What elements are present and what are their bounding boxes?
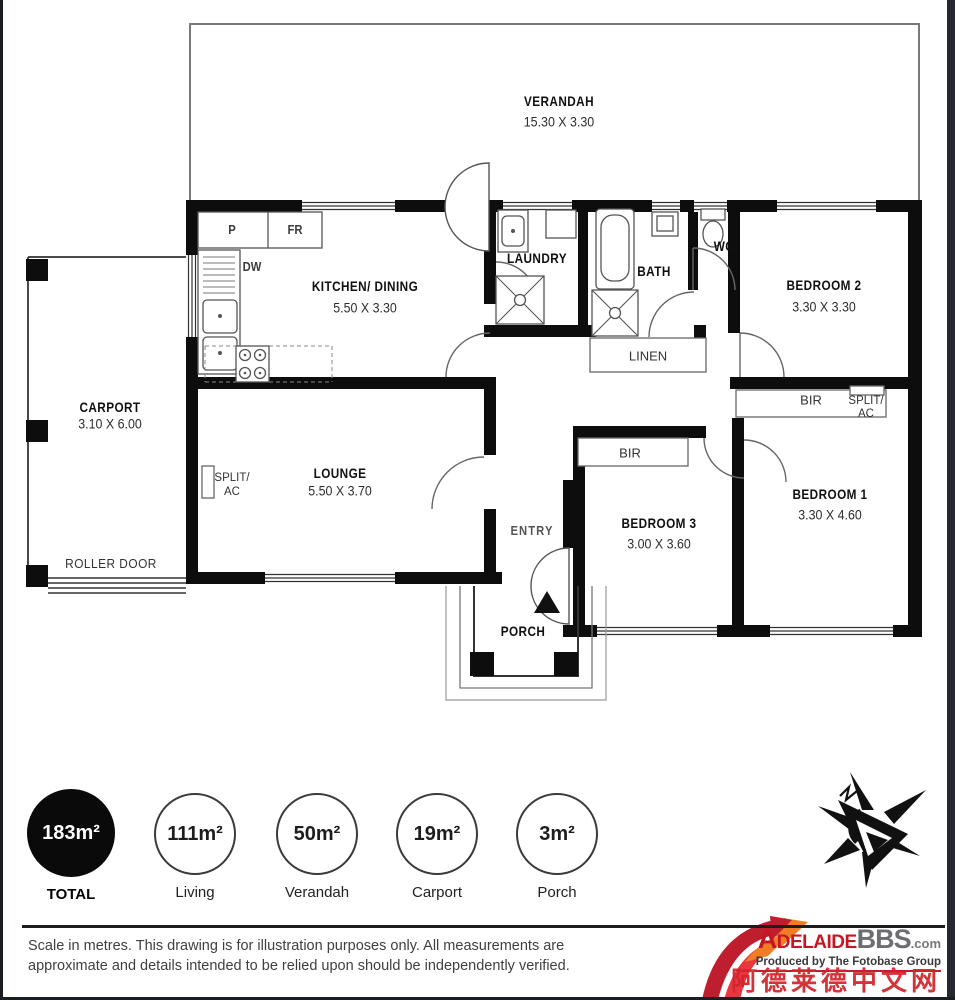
window-lounge [265, 572, 395, 584]
area-carport: 19m² Carport [396, 793, 478, 901]
verandah-dims: 15.30 X 3.30 [524, 115, 594, 130]
area-porch: 3m² Porch [516, 793, 598, 901]
split-ac-lounge-label-top: SPLIT/ [214, 472, 249, 484]
area-porch-label: Porch [516, 884, 598, 901]
area-verandah: 50m² Verandah [276, 793, 358, 901]
brand-bbs: BBS [857, 924, 911, 954]
area-living: 111m² Living [154, 793, 236, 901]
carport-dims: 3.10 X 6.00 [78, 417, 142, 432]
bedroom1-dims: 3.30 X 4.60 [798, 508, 862, 523]
area-living-value: 111m² [167, 823, 223, 846]
brand-text: AdelaideBBS.com [758, 926, 941, 953]
shower-tile-laundry [496, 276, 544, 324]
area-total-label: TOTAL [27, 886, 115, 903]
split-ac-unit-bedroom [850, 386, 884, 395]
hall-door-arc [446, 333, 490, 377]
area-total: 183m² TOTAL [27, 789, 115, 903]
brand-adelaide: Adelaide [758, 924, 857, 954]
area-total-value: 183m² [42, 822, 100, 845]
lounge-label: LOUNGE [314, 465, 367, 481]
split-ac-bedroom-label-top: SPLIT/ [848, 395, 883, 407]
bathtub-icon [596, 209, 634, 289]
window-top-bath [652, 200, 680, 212]
wc-label: WC [714, 238, 734, 254]
pantry-fridge-bench [198, 212, 322, 248]
bedroom1-door-arc [744, 440, 786, 482]
bath-label: BATH [637, 263, 670, 279]
carport-post [26, 420, 48, 442]
porch-post [554, 652, 578, 676]
split-ac-bedroom-label-bottom: AC [858, 408, 874, 420]
verandah-door [445, 163, 489, 251]
bath-door-arc [649, 292, 694, 337]
storage-fixtures [202, 338, 886, 498]
area-verandah-value: 50m² [294, 823, 341, 846]
split-ac-unit-lounge [202, 466, 214, 498]
kitchen-fixtures [198, 212, 332, 382]
floorplan-page: VERANDAH 15.30 X 3.30 KITCHEN/ DINING 5.… [0, 0, 955, 1000]
lounge-dims: 5.50 X 3.70 [308, 484, 372, 499]
watermark-logo: AdelaideBBS.com Produced by The Fotobase… [671, 926, 941, 994]
lounge-door-arc [432, 457, 484, 509]
carport-label: CARPORT [79, 399, 140, 415]
bedroom1-label: BEDROOM 1 [792, 486, 867, 502]
area-carport-label: Carport [396, 884, 478, 901]
carport-post [26, 565, 48, 587]
roller-door-lines [48, 578, 186, 593]
brand-com: .com [911, 936, 941, 951]
porch-label: PORCH [501, 623, 546, 639]
split-ac-lounge-label-bottom: AC [224, 486, 240, 498]
kitchen-label: KITCHEN/ DINING [312, 278, 418, 294]
laundry-label: LAUNDRY [507, 250, 567, 266]
disclaimer-text: Scale in metres. This drawing is for ill… [28, 936, 688, 976]
linen-label: LINEN [629, 349, 667, 364]
roller-door-label: ROLLER DOOR [65, 557, 157, 571]
disclaimer-line2: approximate and details intended to be r… [28, 956, 688, 976]
area-porch-value: 3m² [539, 823, 575, 846]
disclaimer-line1: Scale in metres. This drawing is for ill… [28, 936, 688, 956]
laundry-bench [546, 210, 576, 238]
bir-bedroom2-label: BIR [800, 393, 822, 408]
bedroom2-dims: 3.30 X 3.30 [792, 300, 856, 315]
carport-post [26, 259, 48, 281]
area-porch-circle: 3m² [516, 793, 598, 875]
shower-tile-bath [592, 290, 638, 336]
bir-bedroom3-label: BIR [619, 446, 641, 461]
window-left-kitchen [186, 255, 198, 337]
kitchen-dims: 5.50 X 3.30 [333, 301, 397, 316]
pantry-label: P [228, 223, 236, 237]
area-living-circle: 111m² [154, 793, 236, 875]
right-border [947, 0, 955, 1000]
bedroom2-label: BEDROOM 2 [786, 277, 861, 293]
chinese-watermark: 阿德莱德中文网 [671, 968, 941, 994]
area-living-label: Living [154, 884, 236, 901]
verandah-label: VERANDAH [524, 93, 594, 109]
bedroom3-label: BEDROOM 3 [621, 515, 696, 531]
left-border [0, 0, 3, 1000]
dishwasher-label: DW [243, 260, 262, 274]
bedroom2-door-arc [740, 333, 784, 377]
window-top-bedroom2 [777, 200, 876, 212]
fridge-label: FR [287, 223, 302, 237]
area-total-circle: 183m² [27, 789, 115, 877]
area-carport-circle: 19m² [396, 793, 478, 875]
porch-post [470, 652, 494, 676]
window-bedroom3 [597, 625, 717, 637]
entry-label: ENTRY [510, 524, 553, 538]
area-carport-value: 19m² [414, 823, 461, 846]
window-top-kitchen [302, 200, 395, 212]
compass-icon [818, 772, 926, 888]
area-verandah-circle: 50m² [276, 793, 358, 875]
bedroom3-dims: 3.00 X 3.60 [627, 537, 691, 552]
area-verandah-label: Verandah [276, 884, 358, 901]
window-bedroom1 [770, 625, 893, 637]
